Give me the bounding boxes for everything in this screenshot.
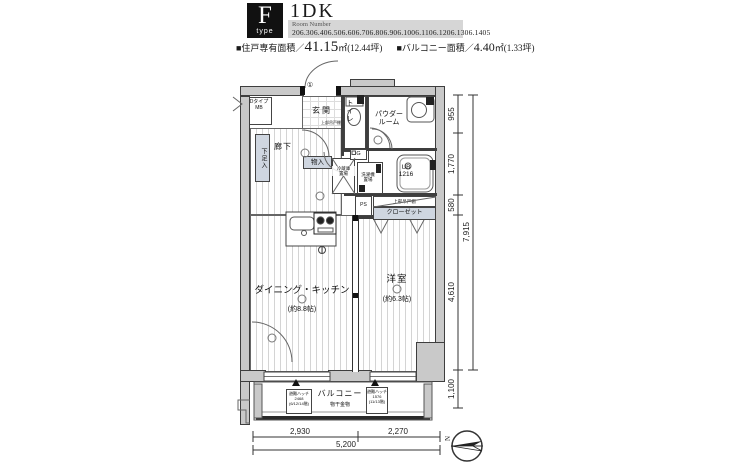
toilet-shelf-label: 上部吊戸棚 xyxy=(314,121,348,126)
windows xyxy=(264,372,416,381)
fridge-line2: 置場 xyxy=(332,171,355,176)
keyed-note: ① xyxy=(304,82,316,90)
hatch-right-box: 避難ハッチ 1576 (11/13階) xyxy=(366,387,388,414)
fridge-label: 冷蔵庫 置場 xyxy=(332,166,355,176)
dim-580: 580 xyxy=(447,183,457,227)
powder-room-line2: ルーム xyxy=(371,119,407,127)
dim-1770: 1,770 xyxy=(447,142,457,186)
hatch-right-line3: (11/13階) xyxy=(367,400,387,405)
powder-room-label: パウダー ルーム xyxy=(371,111,407,127)
unit-bath-label: UB 1216 xyxy=(394,164,418,179)
powder-room-line1: パウダー xyxy=(371,111,407,119)
toilet-label: トイレ xyxy=(345,99,353,123)
hatch-left-line3: (6/12/14階) xyxy=(287,402,311,407)
washbasin-icon xyxy=(407,97,434,122)
unit-bath-line2: 1216 xyxy=(394,171,418,178)
washer-line2: 置場 xyxy=(358,177,378,182)
kitchen-icon xyxy=(286,212,336,254)
compass-icon: N xyxy=(444,431,483,461)
dim-7915: 7,915 xyxy=(462,210,472,254)
dim-2270: 2,270 xyxy=(358,427,438,437)
balcony-structure xyxy=(254,379,432,420)
western-room-label: 洋室 xyxy=(358,275,436,286)
dining-kitchen-label: ダイニング・キッチン xyxy=(250,286,354,297)
dim-5200: 5,200 xyxy=(306,440,386,450)
western-room-size: (約6.3帖) xyxy=(358,296,436,304)
hatch-left-box: 避難ハッチ 2468 (6/12/14階) xyxy=(286,389,312,414)
floor-plan-page: F type 1DK Room Number 206.306.406.506.6… xyxy=(0,0,730,470)
hallway-label: 廊下 xyxy=(268,142,298,151)
plan-linework: N xyxy=(0,0,730,470)
compass-north-label: N xyxy=(444,436,452,441)
dim-955: 955 xyxy=(447,92,457,136)
dim-2930: 2,930 xyxy=(260,427,340,437)
meter-box-label: Dタイプ MB xyxy=(246,100,272,112)
gas-meter-mark xyxy=(352,151,356,155)
washer-label: 洗濯機 置場 xyxy=(358,172,378,182)
drying-fixture-label: 物干金物 xyxy=(316,403,364,409)
dim-4610: 4,610 xyxy=(447,270,457,314)
meter-box-text: MB xyxy=(246,106,272,112)
dim-1100: 1,100 xyxy=(447,367,457,411)
exterior-lines xyxy=(233,97,250,423)
unit-bath-line1: UB xyxy=(394,164,418,171)
dining-kitchen-size: (約8.8帖) xyxy=(250,306,354,314)
entrance-label: 玄関 xyxy=(302,106,342,115)
